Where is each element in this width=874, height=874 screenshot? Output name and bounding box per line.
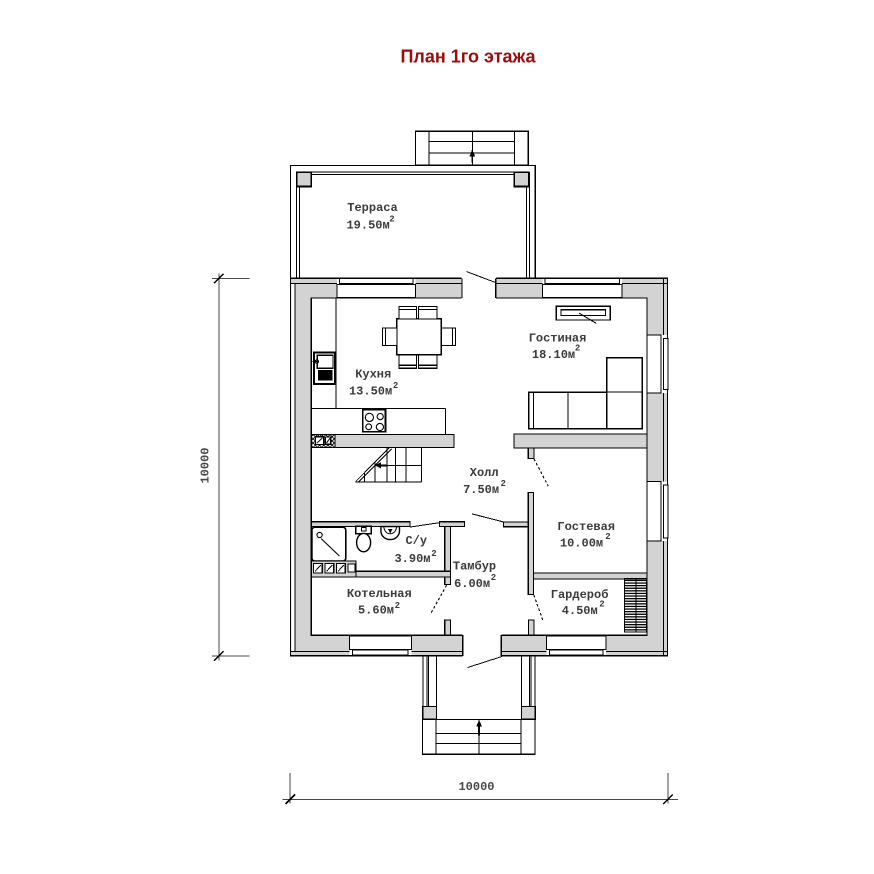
svg-text:План 1го этажа: План 1го этажа (400, 47, 536, 67)
svg-text:13.50м: 13.50м (349, 385, 392, 399)
svg-text:19.50м: 19.50м (346, 219, 389, 233)
svg-text:2: 2 (575, 344, 580, 354)
svg-text:10000: 10000 (199, 447, 213, 483)
svg-text:Кухня: Кухня (355, 368, 391, 382)
svg-text:3.90м: 3.90м (394, 552, 430, 566)
svg-text:2: 2 (605, 532, 610, 542)
svg-text:18.10м: 18.10м (532, 348, 575, 362)
svg-text:2: 2 (431, 549, 436, 559)
svg-text:10.00м: 10.00м (560, 537, 603, 551)
svg-text:Холл: Холл (470, 466, 499, 480)
svg-text:2: 2 (395, 601, 400, 611)
svg-text:2: 2 (393, 381, 398, 391)
svg-text:5.60м: 5.60м (358, 604, 394, 618)
svg-text:2: 2 (500, 479, 505, 489)
svg-text:Тамбур: Тамбур (453, 559, 496, 574)
svg-text:10000: 10000 (458, 780, 494, 794)
svg-text:2: 2 (599, 600, 604, 610)
svg-text:2: 2 (389, 215, 394, 225)
svg-text:2: 2 (491, 573, 496, 583)
svg-text:7.50м: 7.50м (463, 483, 499, 497)
svg-text:4.50м: 4.50м (562, 604, 598, 618)
svg-text:Котельная: Котельная (347, 587, 412, 601)
svg-text:Терраса: Терраса (347, 201, 397, 215)
svg-text:6.00м: 6.00м (454, 577, 490, 591)
svg-text:С/у: С/у (405, 534, 427, 548)
